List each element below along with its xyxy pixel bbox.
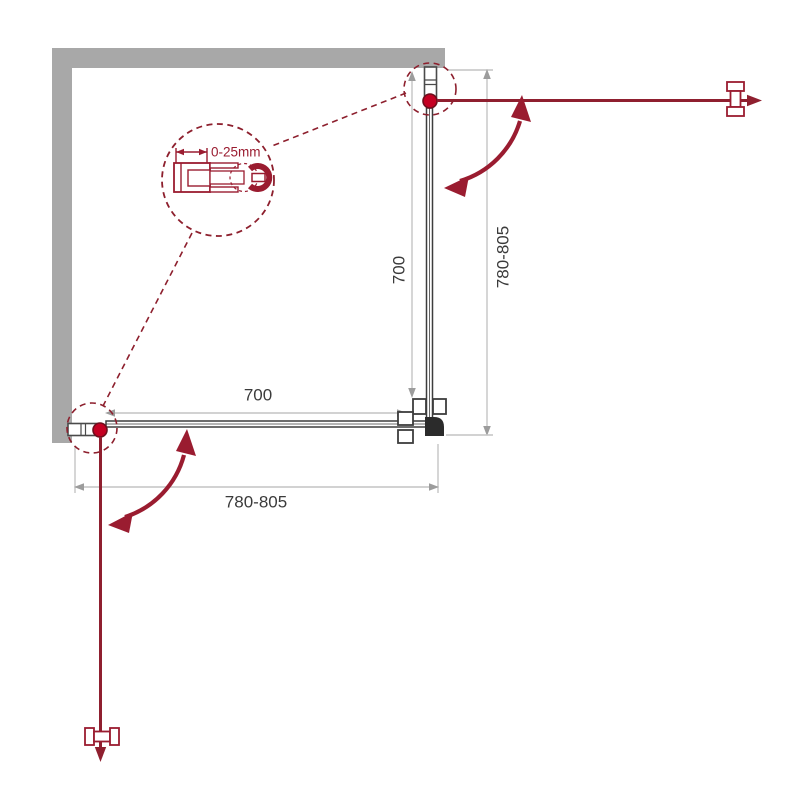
bottom-hinge-assembly bbox=[67, 403, 196, 762]
door-handle-bottom bbox=[94, 732, 110, 742]
door-arrow-icon bbox=[747, 95, 762, 106]
door-handle-top bbox=[727, 107, 744, 116]
detail-clamp-notch bbox=[252, 174, 265, 182]
dimension-label-panel-height: 700 bbox=[389, 256, 408, 284]
callout-leader-top bbox=[272, 93, 406, 146]
hinge-pivot-icon bbox=[423, 94, 437, 108]
door-arrow-icon bbox=[95, 747, 106, 762]
hinge-pivot-icon bbox=[93, 423, 107, 437]
glass-clamp-icon bbox=[398, 430, 413, 443]
glass-clamp-icon bbox=[433, 399, 446, 414]
wall-top bbox=[52, 48, 445, 68]
top-hinge-assembly bbox=[404, 63, 762, 197]
shower-enclosure-diagram: 780-805 700 700 780-805 bbox=[0, 0, 800, 800]
detail-dim-arrow-icon bbox=[199, 149, 207, 156]
swing-arrow-bottom bbox=[125, 455, 184, 517]
detail-glass bbox=[210, 171, 244, 184]
swing-arrowhead-icon bbox=[176, 429, 196, 456]
callout-leader-bottom bbox=[103, 233, 192, 406]
door-handle-bottom bbox=[85, 728, 94, 745]
detail-adjustment-label: 0-25mm bbox=[211, 145, 261, 160]
swing-arrowhead-icon bbox=[444, 176, 469, 197]
glass-clamp-icon bbox=[398, 412, 413, 425]
dimension-label-panel-width: 700 bbox=[244, 385, 272, 404]
swing-arrow-top bbox=[460, 121, 520, 181]
glass-clamp-icon bbox=[413, 399, 426, 414]
swing-arrowhead-icon bbox=[108, 512, 133, 533]
drawing-page: 780-805 700 700 780-805 bbox=[0, 0, 800, 800]
detail-profile-inner bbox=[188, 170, 210, 186]
door-handle-top bbox=[727, 82, 744, 91]
wall-left bbox=[52, 68, 72, 443]
dimension-label-width: 780-805 bbox=[225, 492, 287, 511]
door-handle-top bbox=[731, 91, 741, 107]
detail-dim-arrow-icon bbox=[176, 149, 184, 156]
dim-arrow-down-icon bbox=[408, 388, 416, 398]
door-handle-bottom bbox=[110, 728, 119, 745]
dimension-label-height: 780-805 bbox=[493, 226, 512, 288]
detail-callout: 0-25mm bbox=[103, 93, 406, 406]
corner-bracket-icon bbox=[425, 417, 444, 436]
